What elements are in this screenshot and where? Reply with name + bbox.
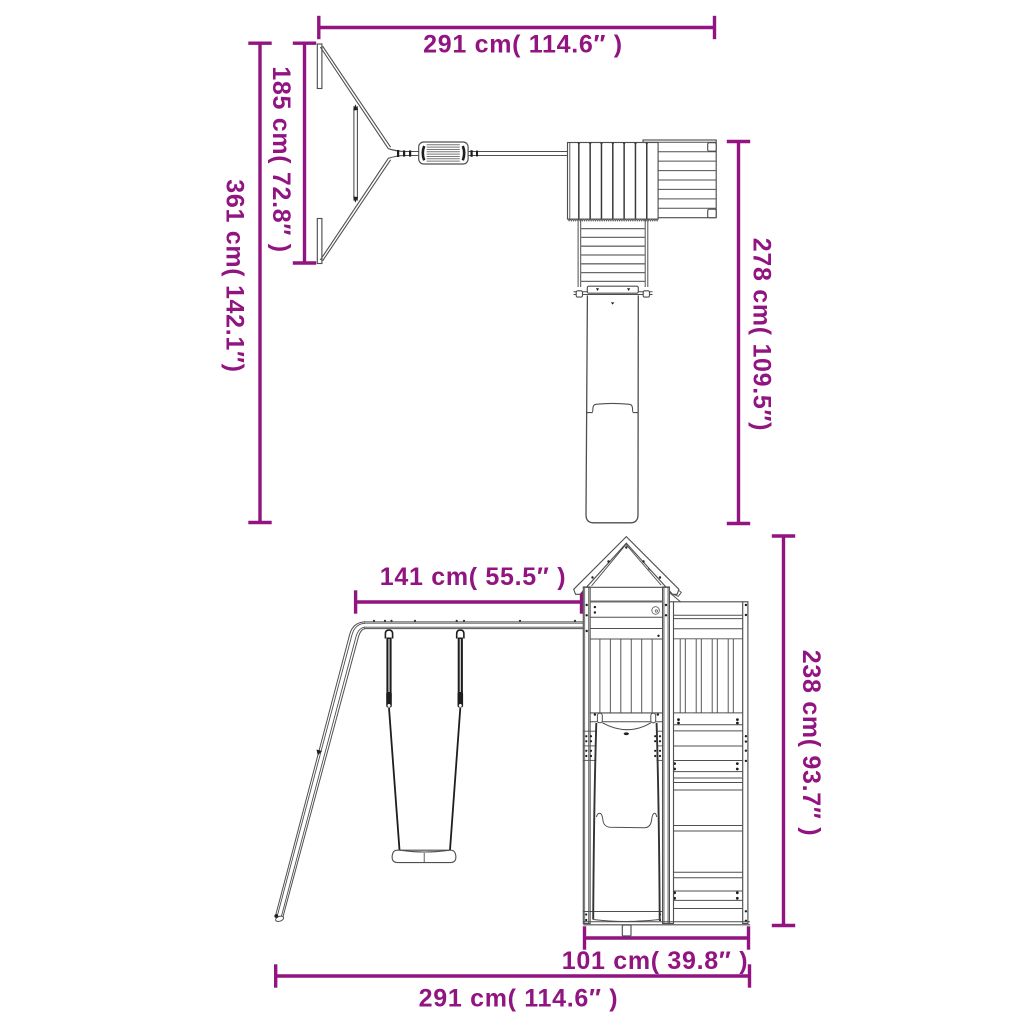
- svg-text:185 cm( 72.8″ ): 185 cm( 72.8″ ): [267, 66, 295, 252]
- svg-text:238 cm( 93.7″ ): 238 cm( 93.7″ ): [797, 650, 825, 836]
- svg-text:291 cm( 114.6″ ): 291 cm( 114.6″ ): [423, 31, 623, 59]
- svg-text:141 cm( 55.5″ ): 141 cm( 55.5″ ): [380, 563, 566, 591]
- svg-text:361 cm( 142.1″): 361 cm( 142.1″): [221, 179, 249, 372]
- svg-text:278 cm( 109.5″): 278 cm( 109.5″): [748, 238, 776, 431]
- svg-text:291 cm( 114.6″ ): 291 cm( 114.6″ ): [419, 985, 619, 1013]
- svg-text:101 cm( 39.8″ ): 101 cm( 39.8″ ): [562, 947, 748, 975]
